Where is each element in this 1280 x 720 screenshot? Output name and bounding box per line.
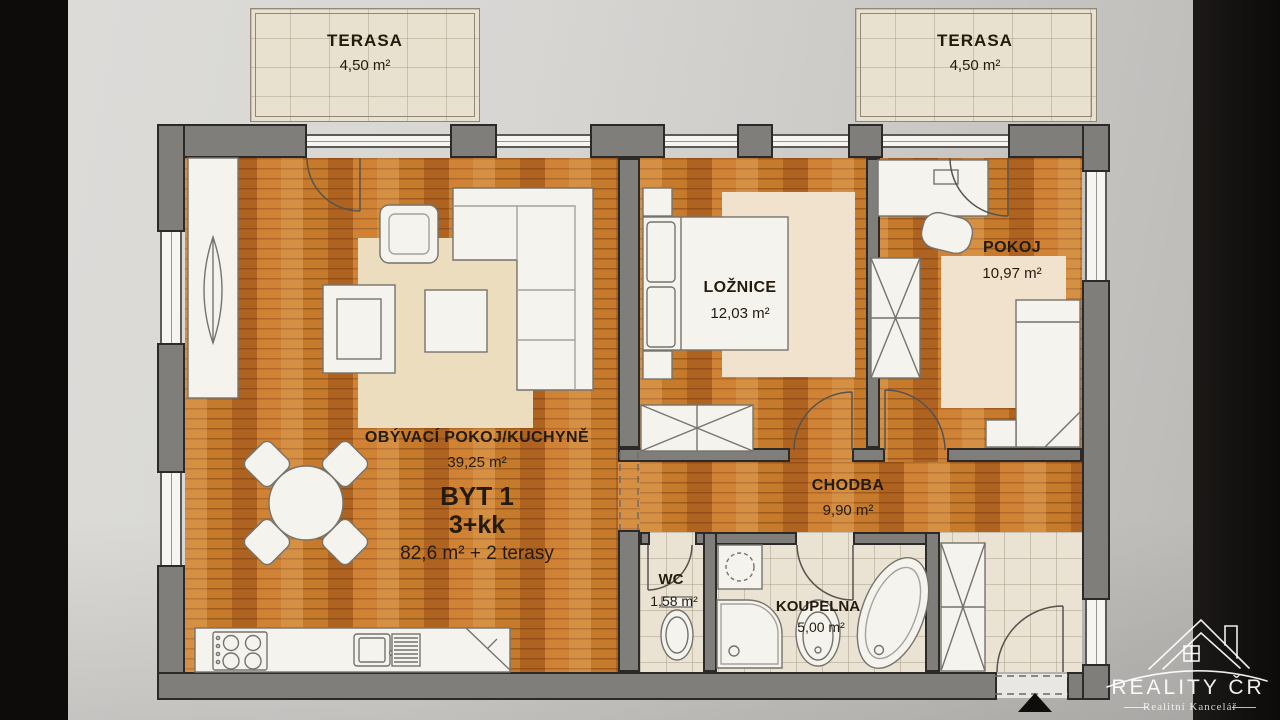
- wall-wc-bathroom: [703, 532, 717, 672]
- window-top-bedroom-2: [773, 134, 848, 148]
- wall-left-1: [157, 124, 185, 232]
- kidsroom-area: 10,97 m²: [982, 266, 1041, 281]
- wall-top-4: [737, 124, 773, 158]
- wc-name: WC: [659, 572, 684, 587]
- wall-right-2: [1082, 280, 1110, 600]
- window-left-upper: [160, 232, 182, 343]
- unit-title: BYT 1: [440, 483, 514, 509]
- hallway-name: CHODBA: [812, 478, 885, 494]
- unit-total-area: 82,6 m² + 2 terasy: [400, 544, 554, 563]
- bathroom-name: KOUPELNA: [776, 599, 860, 614]
- wall-right-3: [1082, 664, 1110, 700]
- wall-right-1: [1082, 124, 1110, 172]
- living-room-floor: [185, 158, 640, 672]
- terrace-right-area: 4,50 m²: [950, 58, 1001, 73]
- terrace-left-area: 4,50 m²: [340, 58, 391, 73]
- left-black-bar: [0, 0, 68, 720]
- logo-dash-right: [1232, 707, 1256, 708]
- wall-bottom-1: [157, 672, 997, 700]
- terrace-right-name: TERASA: [937, 32, 1013, 49]
- bedroom-name: LOŽNICE: [703, 280, 776, 296]
- wall-bathroom-entry: [925, 532, 940, 672]
- wall-top-2: [450, 124, 497, 158]
- living-name: OBÝVACÍ POKOJ/KUCHYNĚ: [365, 430, 589, 446]
- wall-top-5: [848, 124, 883, 158]
- wall-kidsroom-bottom: [947, 448, 1082, 462]
- unit-disposition: 3+kk: [449, 513, 505, 538]
- window-top-living: [497, 134, 590, 148]
- wall-living-hall: [618, 530, 640, 672]
- kidsroom-floor: [866, 158, 1082, 462]
- kidsroom-name: POKOJ: [983, 240, 1041, 256]
- wall-left-2: [157, 343, 185, 473]
- wc-area: 1,58 m²: [650, 594, 697, 608]
- wall-living-bedroom: [618, 158, 640, 448]
- terrace-left-door-window: [307, 134, 450, 148]
- wall-stub-center: [852, 448, 885, 462]
- entrance-arrow-icon: [1018, 693, 1052, 712]
- hallway-floor: [640, 462, 1082, 532]
- window-right-upper: [1085, 172, 1107, 280]
- living-area: 39,25 m²: [447, 455, 506, 470]
- logo-dash-left: [1124, 707, 1148, 708]
- window-top-bedroom-1: [665, 134, 737, 148]
- window-right-lower: [1085, 600, 1107, 664]
- terrace-right-door-window: [883, 134, 1008, 148]
- wall-wet-top-1: [640, 532, 650, 545]
- wall-top-3: [590, 124, 665, 158]
- wall-bedroom-kidsroom: [866, 158, 880, 448]
- floor-plan-photo: TERASA 4,50 m² TERASA 4,50 m² LOŽNICE 12…: [0, 0, 1280, 720]
- agency-logo-name: REALITY ČR: [1111, 676, 1264, 700]
- window-left-lower: [160, 473, 182, 565]
- bathroom-area: 5,00 m²: [797, 620, 844, 634]
- wall-bedroom-bottom: [618, 448, 790, 462]
- bedroom-area: 12,03 m²: [710, 306, 769, 321]
- right-black-area: [1193, 0, 1280, 720]
- terrace-left-name: TERASA: [327, 32, 403, 49]
- hallway-area: 9,90 m²: [823, 503, 874, 518]
- agency-logo-tagline: Realitní Kancelář: [1143, 701, 1237, 713]
